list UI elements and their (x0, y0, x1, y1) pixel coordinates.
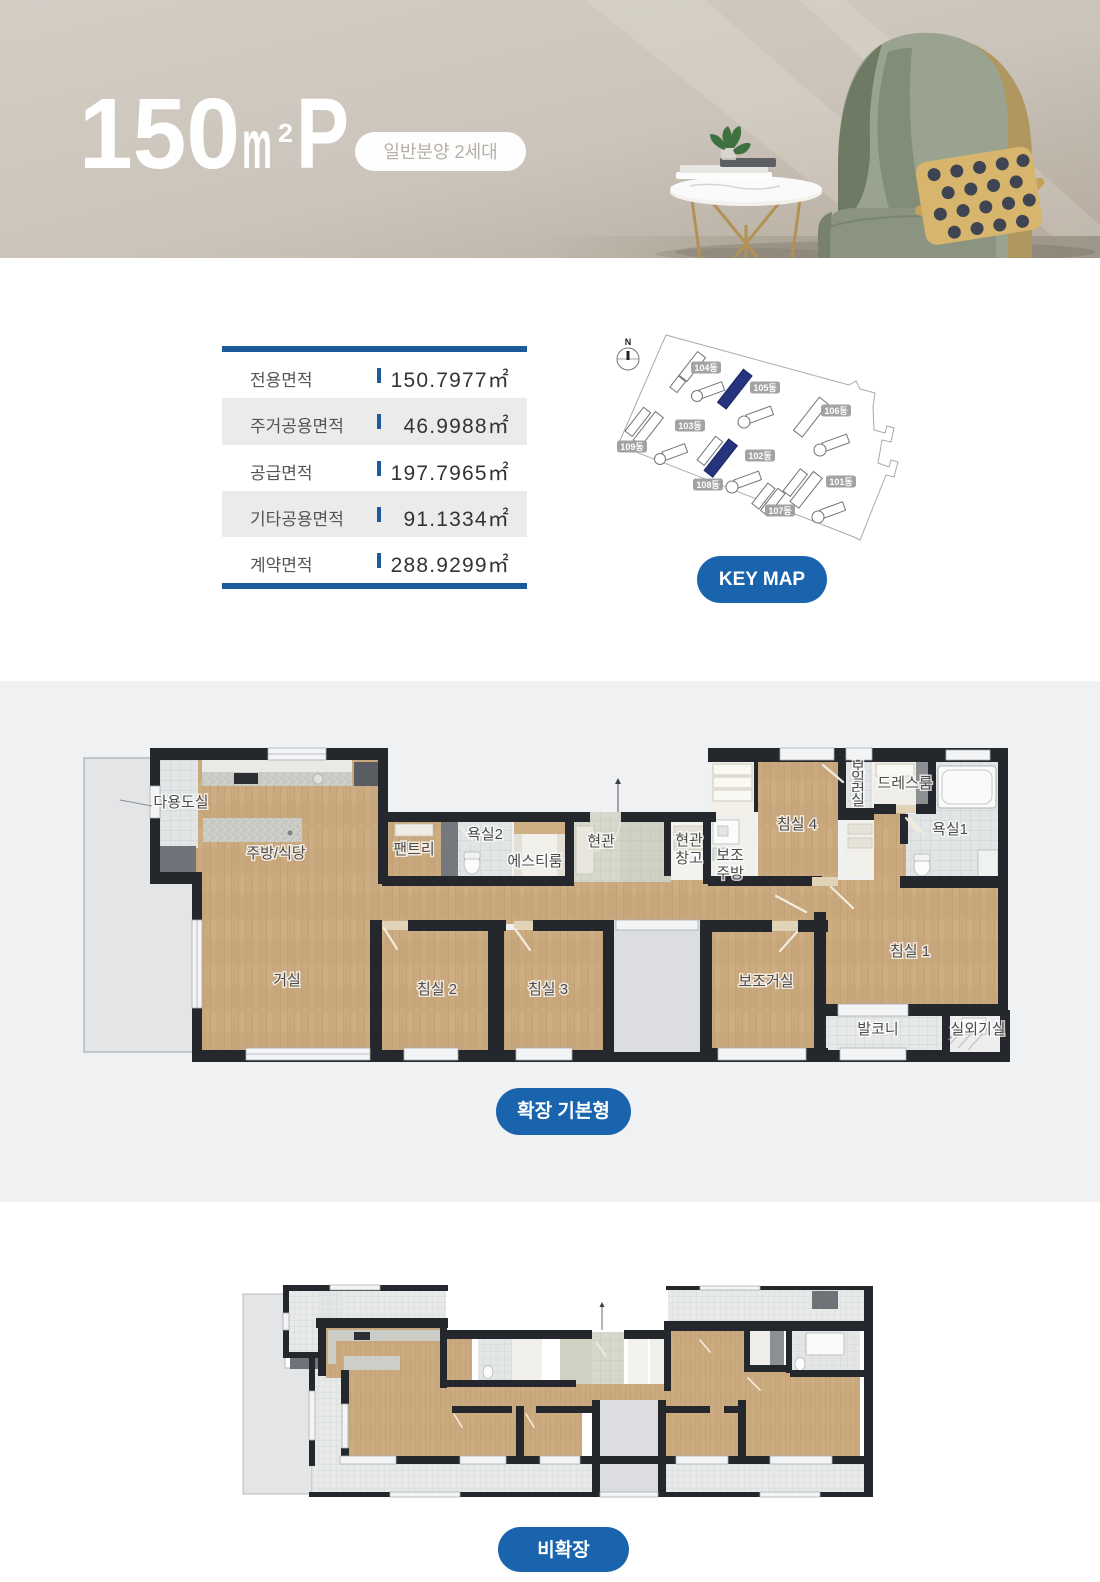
svg-text:거실: 거실 (273, 972, 301, 989)
svg-text:발코니: 발코니 (857, 1021, 898, 1038)
svg-text:108동: 108동 (696, 480, 719, 490)
svg-text:보조거실: 보조거실 (738, 973, 793, 990)
svg-text:현관: 현관 (675, 832, 703, 849)
svg-text:101동: 101동 (829, 477, 852, 487)
svg-text:주방/식당: 주방/식당 (246, 845, 306, 862)
svg-text:107동: 107동 (768, 506, 791, 516)
svg-text:N: N (625, 337, 632, 347)
svg-text:에스티룸: 에스티룸 (507, 853, 562, 870)
svg-text:욕실2: 욕실2 (467, 826, 503, 843)
svg-text:104동: 104동 (694, 363, 717, 373)
svg-text:침실 2: 침실 2 (417, 981, 457, 998)
svg-text:욕실1: 욕실1 (932, 821, 968, 838)
svg-text:창고: 창고 (675, 850, 703, 867)
svg-text:m: m (242, 106, 272, 183)
svg-text:P: P (296, 78, 349, 190)
svg-text:102동: 102동 (748, 451, 771, 461)
svg-text:106동: 106동 (824, 406, 847, 416)
svg-text:103동: 103동 (678, 421, 701, 431)
svg-text:2: 2 (278, 118, 293, 148)
svg-text:보조: 보조 (716, 847, 744, 864)
svg-text:침실 1: 침실 1 (890, 943, 930, 960)
svg-text:현관: 현관 (587, 833, 615, 850)
svg-text:주방: 주방 (716, 865, 744, 882)
svg-text:침실 4: 침실 4 (777, 816, 817, 833)
svg-text:105동: 105동 (753, 383, 776, 393)
svg-text:팬트리: 팬트리 (393, 841, 434, 858)
svg-text:드레스룸: 드레스룸 (877, 775, 932, 792)
svg-text:150: 150 (79, 78, 240, 190)
svg-text:실외기실: 실외기실 (950, 1021, 1005, 1038)
svg-text:실: 실 (851, 792, 865, 809)
svg-text:109동: 109동 (620, 442, 643, 452)
svg-text:다용도실: 다용도실 (153, 794, 208, 811)
svg-text:침실 3: 침실 3 (528, 981, 568, 998)
